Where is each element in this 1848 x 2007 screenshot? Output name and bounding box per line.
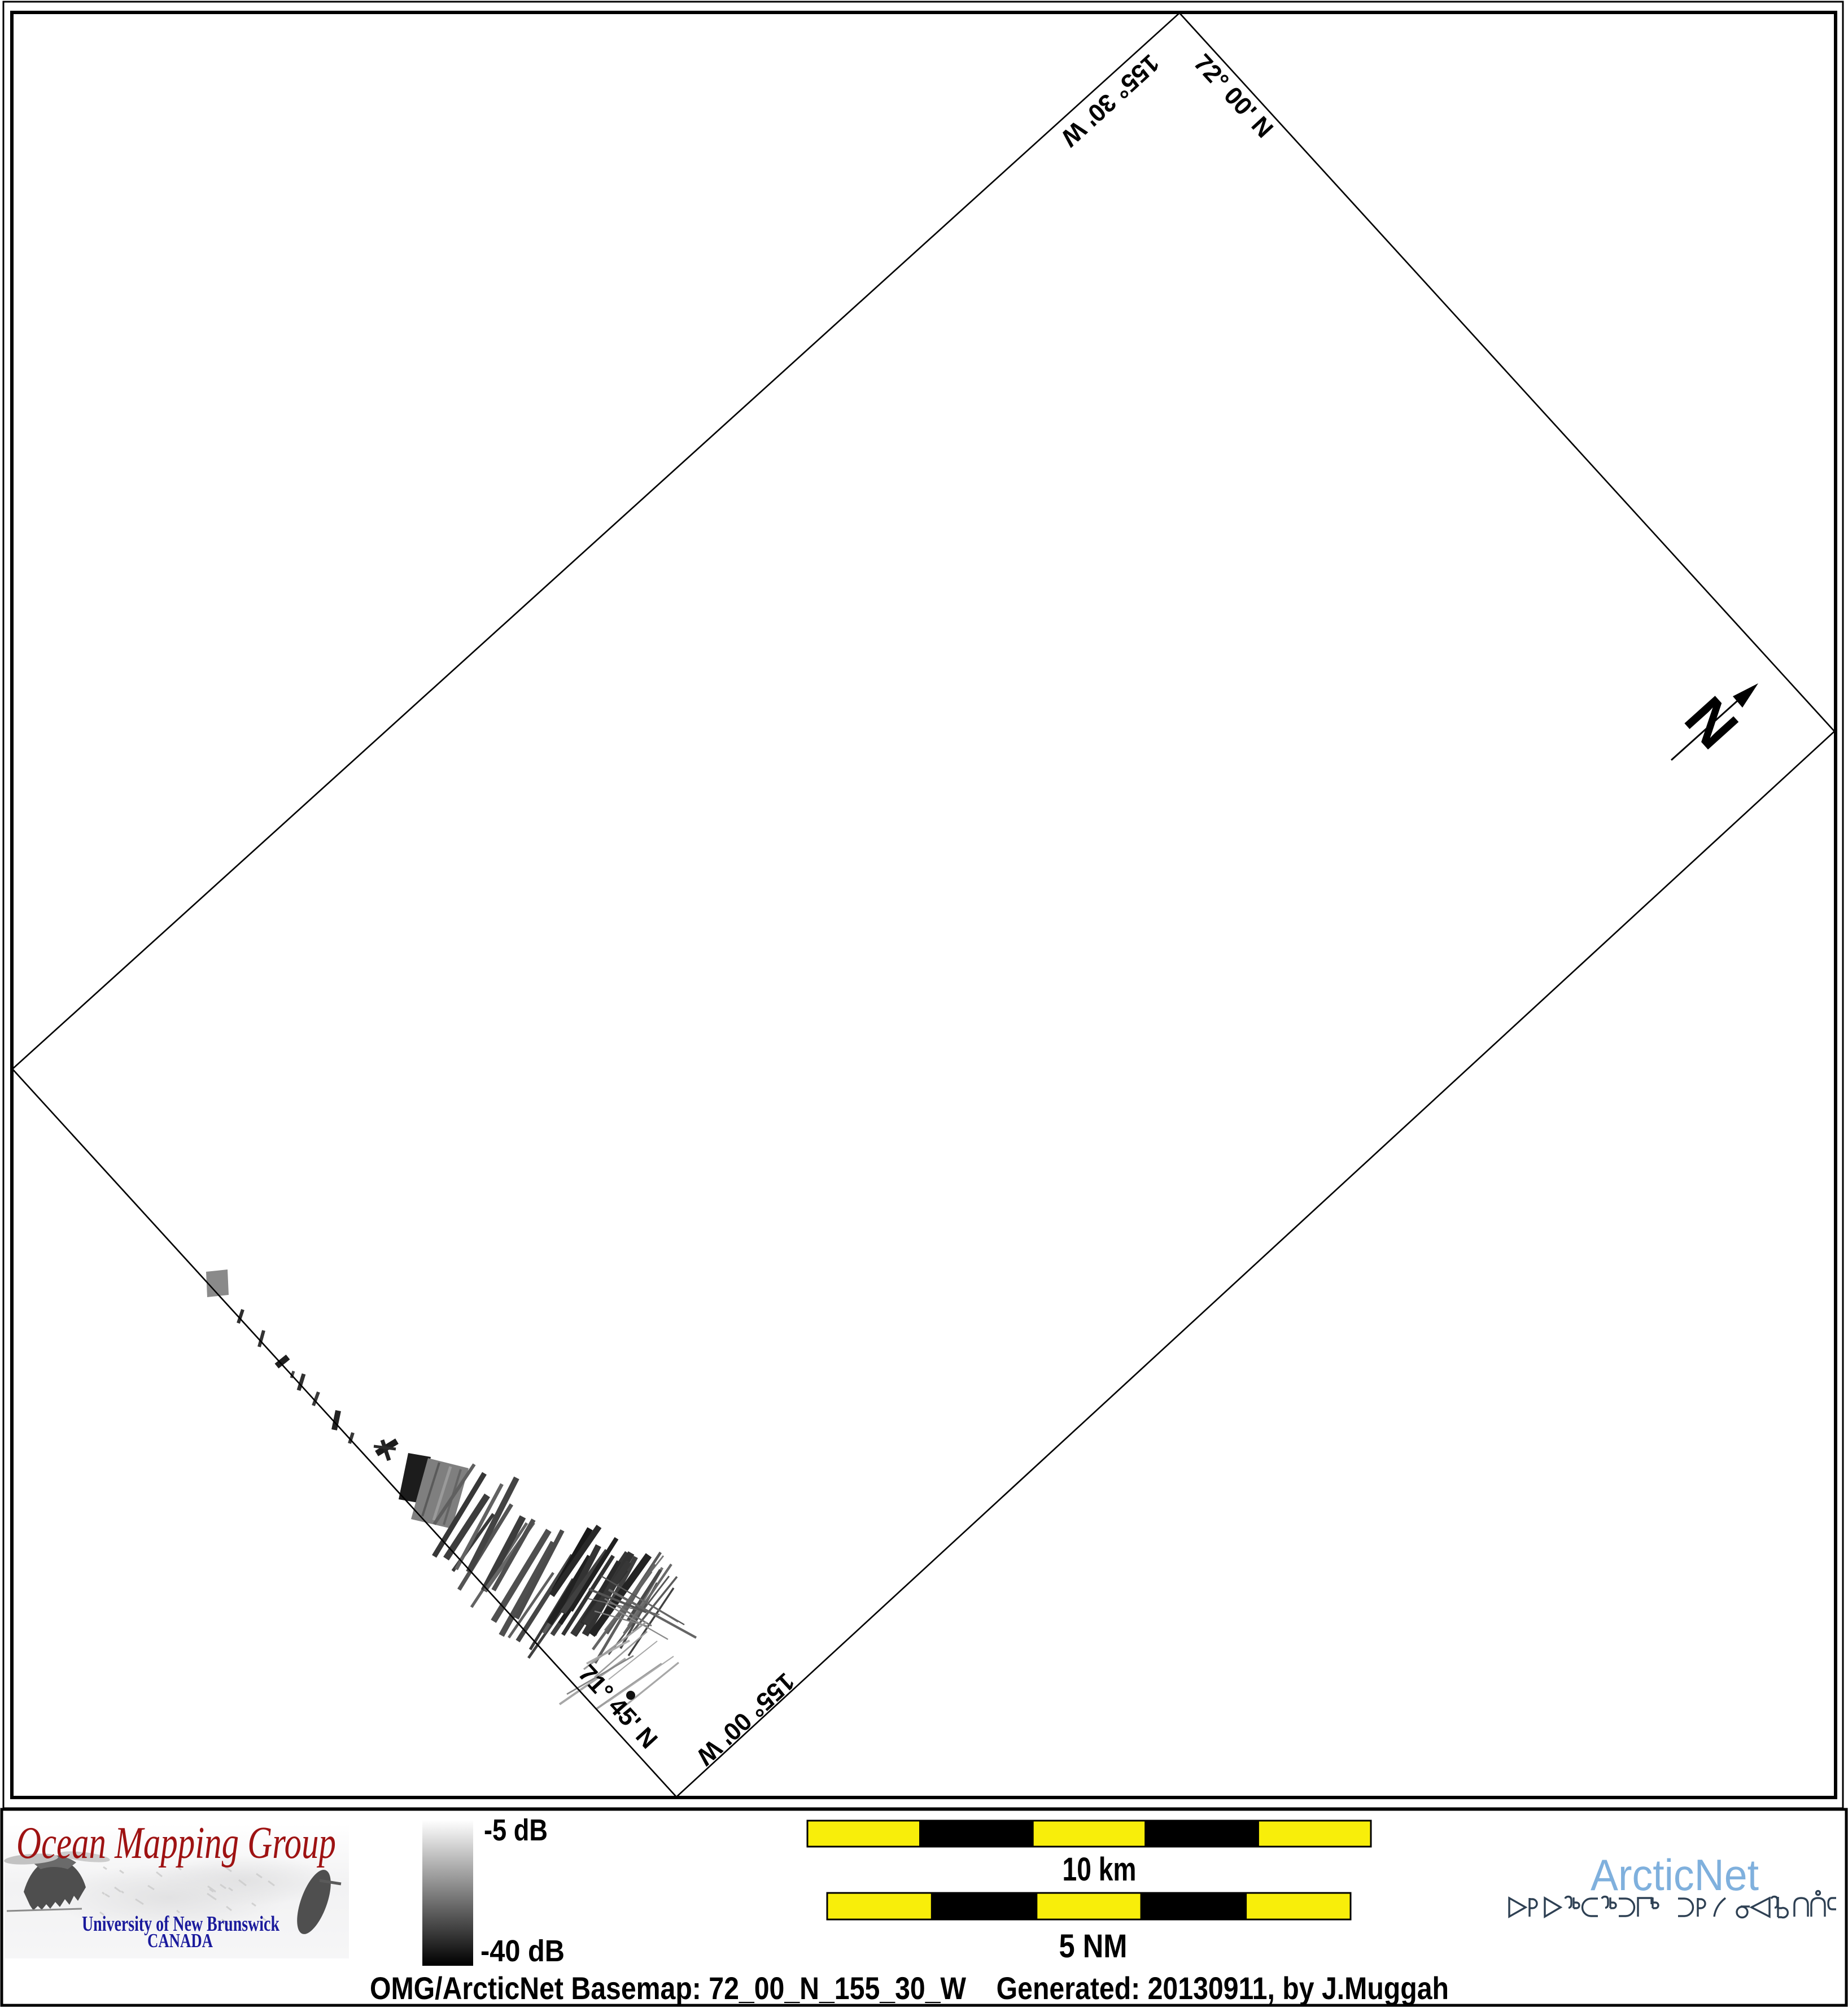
svg-text:10 km: 10 km (1063, 1851, 1137, 1888)
svg-text:Ocean Mapping Group: Ocean Mapping Group (16, 1818, 336, 1868)
svg-text:5 NM: 5 NM (1059, 1928, 1128, 1965)
svg-text:CANADA: CANADA (147, 1930, 213, 1952)
svg-text:OMG/ArcticNet Basemap: 72_00_N: OMG/ArcticNet Basemap: 72_00_N_155_30_W … (370, 1970, 1449, 2006)
svg-text:ArcticNet: ArcticNet (1591, 1850, 1759, 1900)
svg-text:-5 dB: -5 dB (484, 1813, 548, 1847)
svg-text:-40 dB: -40 dB (480, 1934, 565, 1968)
